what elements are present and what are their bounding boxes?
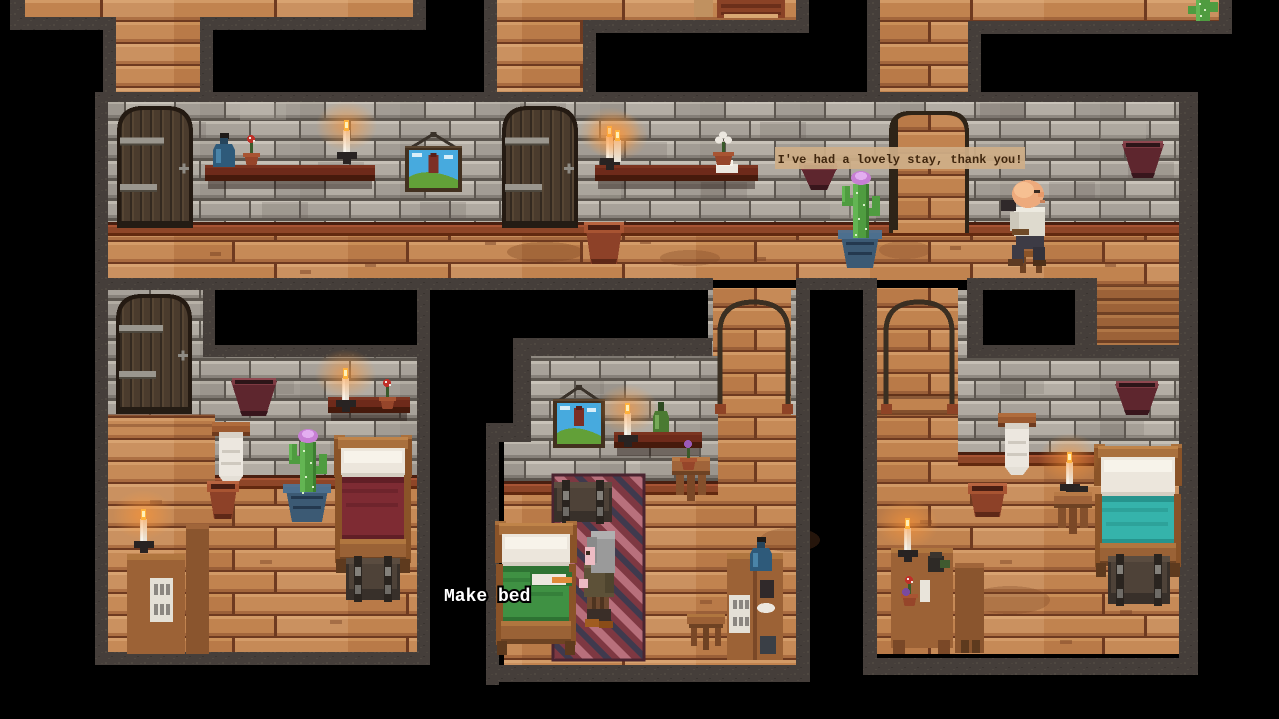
- svg-text:I've had a lovely stay, thank: I've had a lovely stay, thank you!: [778, 153, 1023, 167]
- svg-text:Make bed: Make bed: [444, 587, 530, 607]
